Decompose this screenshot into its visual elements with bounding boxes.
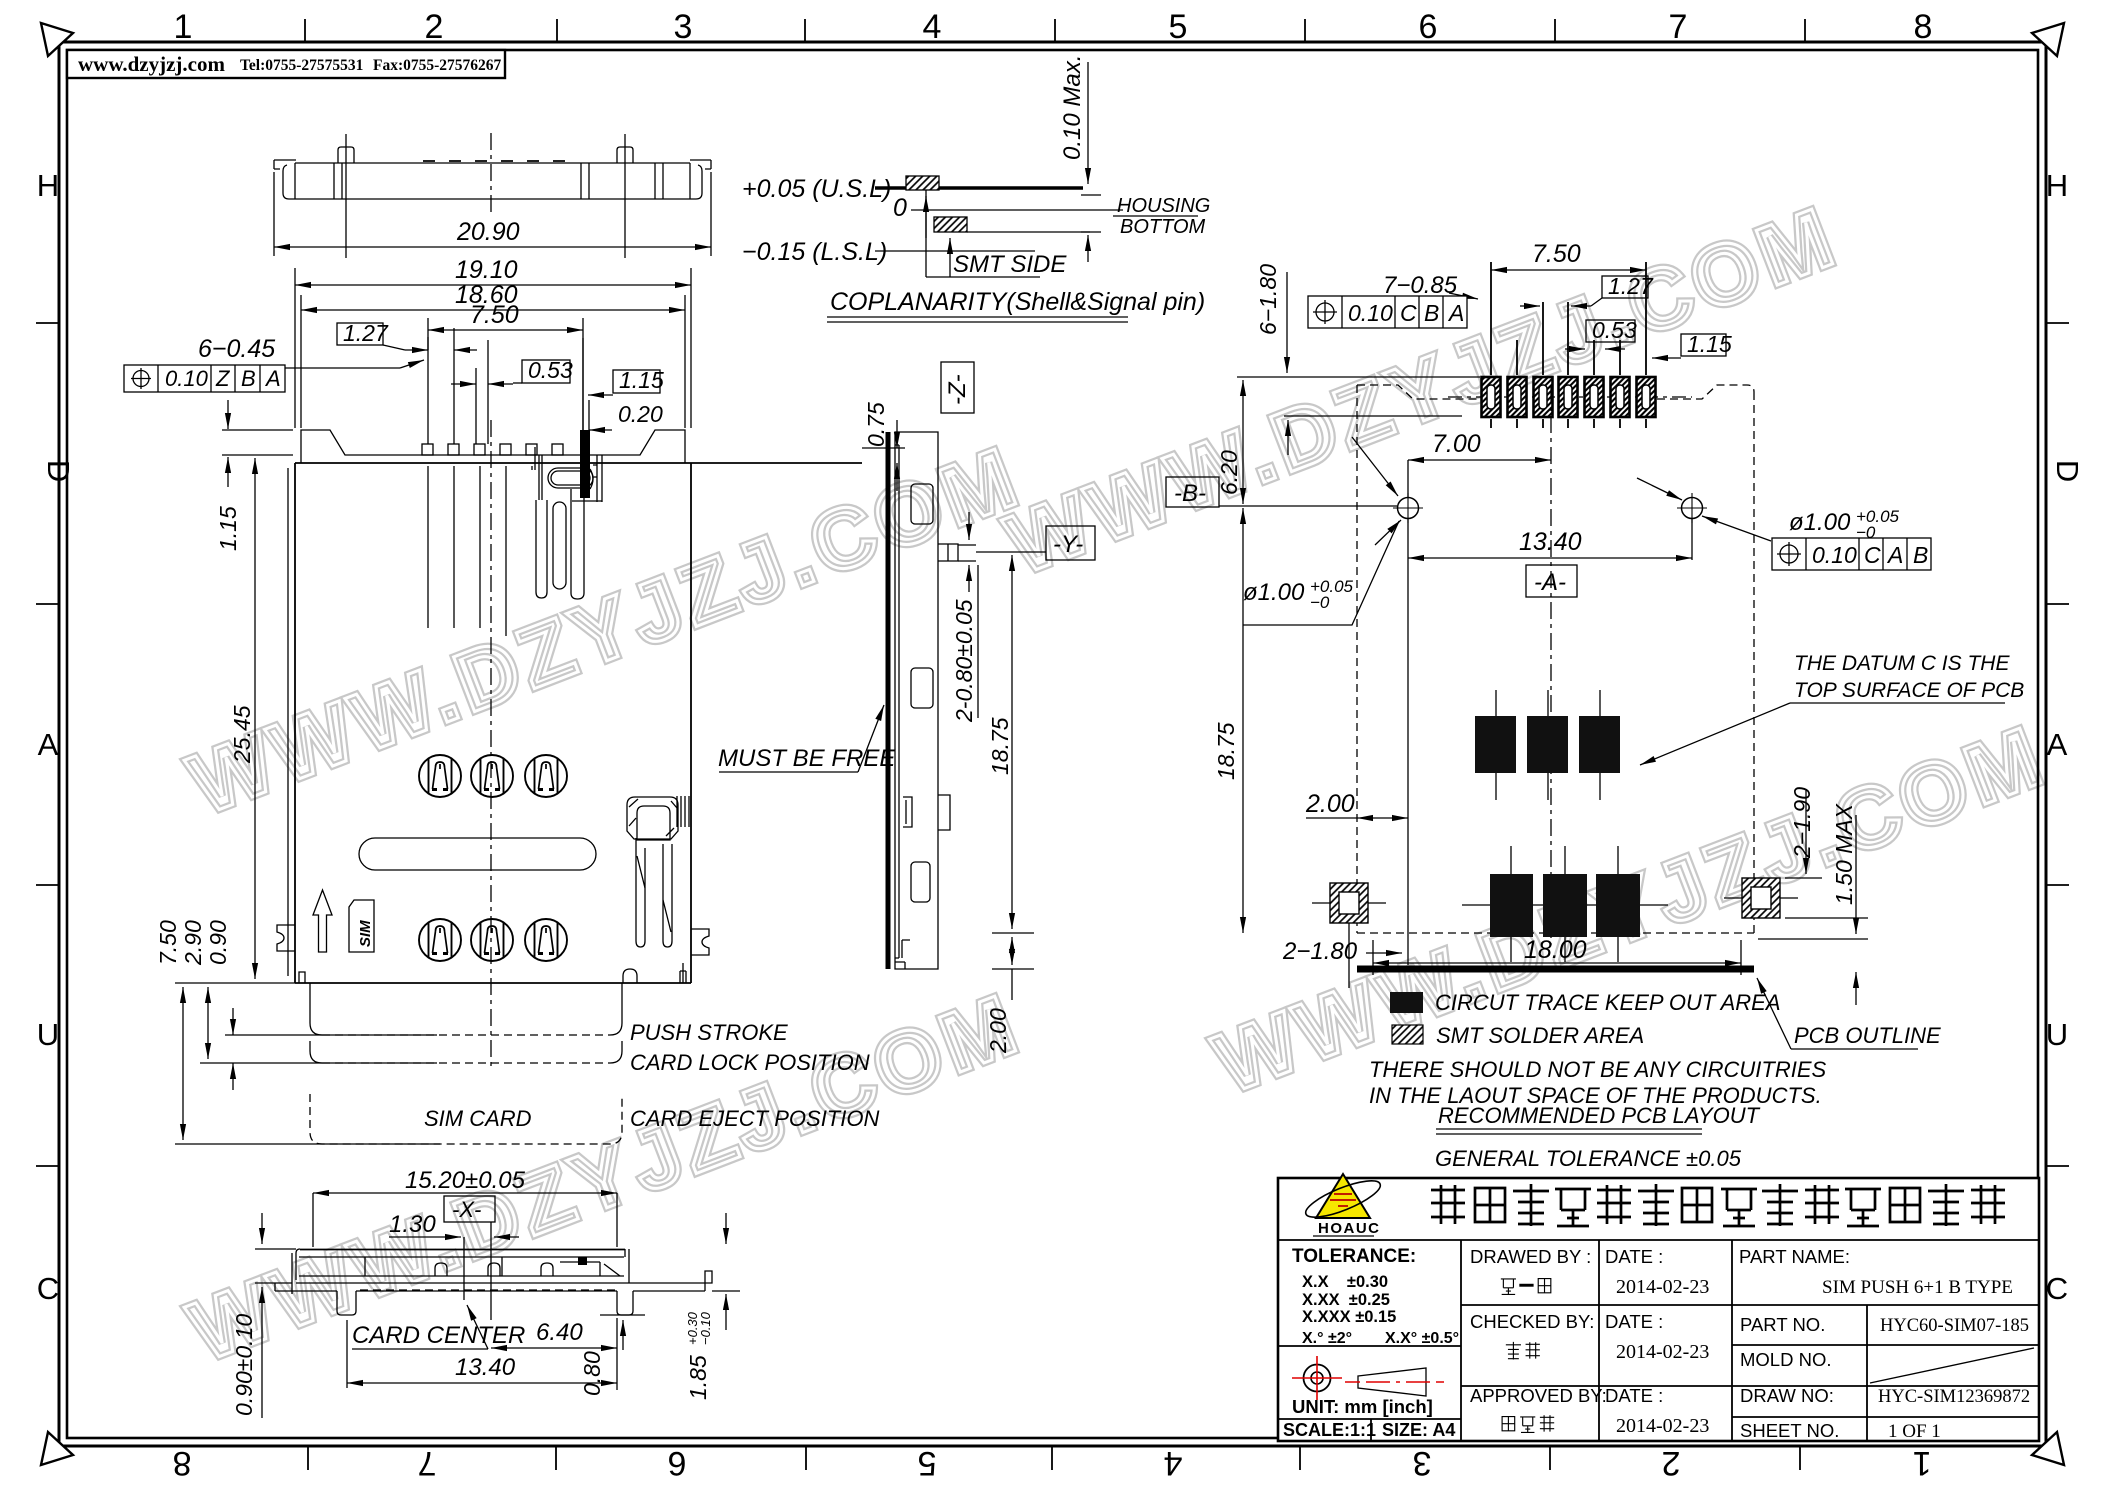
svg-text:7: 7 (1669, 8, 1688, 46)
svg-text:−0: −0 (1310, 593, 1330, 612)
svg-text:0.90: 0.90 (205, 920, 231, 965)
svg-text:SMT SOLDER AREA: SMT SOLDER AREA (1436, 1023, 1644, 1048)
svg-text:2: 2 (1662, 1444, 1681, 1482)
svg-text:2−1.80: 2−1.80 (1282, 938, 1358, 965)
svg-text:X.X ±0.30: X.X ±0.30 (1302, 1273, 1388, 1291)
svg-text:6: 6 (668, 1444, 687, 1482)
svg-text:7−0.85: 7−0.85 (1383, 272, 1458, 299)
svg-text:APPROVED BY:: APPROVED BY: (1470, 1385, 1607, 1406)
svg-text:THERE SHOULD NOT BE ANY CIRCUI: THERE SHOULD NOT BE ANY CIRCUITRIES (1369, 1057, 1827, 1082)
svg-text:SIZE: A4: SIZE: A4 (1382, 1420, 1455, 1440)
svg-text:-X-: -X- (452, 1197, 481, 1222)
svg-text:U: U (2046, 1017, 2068, 1052)
svg-text:H: H (37, 168, 59, 203)
svg-text:0: 0 (893, 194, 907, 222)
svg-text:H: H (2046, 168, 2068, 203)
svg-text:D: D (2050, 460, 2085, 482)
svg-text:6−0.45: 6−0.45 (198, 335, 275, 363)
svg-text:DRAW NO:: DRAW NO: (1740, 1385, 1834, 1406)
svg-text:HOAUC: HOAUC (1318, 1220, 1381, 1237)
svg-text:2: 2 (425, 8, 444, 46)
svg-text:MUST BE FREE: MUST BE FREE (718, 745, 896, 772)
svg-text:7: 7 (418, 1444, 437, 1482)
svg-text:-B-: -B- (1174, 480, 1206, 507)
svg-text:1.15: 1.15 (1687, 331, 1732, 357)
svg-text:A: A (38, 727, 59, 762)
svg-text:DATE :: DATE : (1605, 1385, 1663, 1406)
svg-text:DATE :: DATE : (1605, 1246, 1663, 1267)
svg-text:SIM: SIM (357, 920, 374, 947)
svg-text:7.00: 7.00 (1432, 430, 1481, 458)
svg-text:HYC-SIM12369872: HYC-SIM12369872 (1878, 1387, 2030, 1407)
svg-text:−0.10: −0.10 (698, 1311, 713, 1345)
svg-text:19.10: 19.10 (455, 256, 518, 284)
svg-text:1 OF 1: 1 OF 1 (1888, 1421, 1941, 1442)
svg-text:HYC60-SIM07-185: HYC60-SIM07-185 (1880, 1316, 2029, 1336)
svg-text:13.40: 13.40 (455, 1354, 516, 1381)
svg-text:C: C (2046, 1271, 2068, 1306)
svg-text:1.85: 1.85 (685, 1355, 711, 1400)
svg-text:A: A (2047, 727, 2068, 762)
svg-text:2.00: 2.00 (985, 1008, 1011, 1054)
svg-text:X.XXX ±0.15: X.XXX ±0.15 (1302, 1308, 1396, 1326)
svg-text:SIM PUSH 6+1 B TYPE: SIM PUSH 6+1 B TYPE (1822, 1277, 2013, 1298)
svg-text:25.45: 25.45 (229, 705, 255, 764)
svg-text:PCB OUTLINE: PCB OUTLINE (1794, 1023, 1941, 1048)
svg-text:COPLANARITY(Shell&Signal pin): COPLANARITY(Shell&Signal pin) (830, 288, 1205, 316)
svg-text:13.40: 13.40 (1519, 528, 1582, 556)
svg-text:PART NO.: PART NO. (1740, 1314, 1825, 1335)
svg-text:C: C (1864, 542, 1881, 568)
svg-text:0.10: 0.10 (165, 366, 209, 391)
svg-text:+0.05 (U.S.L): +0.05 (U.S.L) (742, 175, 891, 203)
svg-text:B: B (1913, 542, 1928, 568)
svg-text:Tel:0755-27575531: Tel:0755-27575531 (240, 57, 363, 74)
svg-text:18.75: 18.75 (987, 717, 1013, 775)
svg-text:2.00: 2.00 (1305, 790, 1355, 818)
svg-text:B: B (1424, 300, 1439, 326)
svg-text:UNIT: mm [inch]: UNIT: mm [inch] (1292, 1396, 1433, 1417)
svg-text:TOLERANCE:: TOLERANCE: (1292, 1246, 1416, 1267)
svg-text:8: 8 (1914, 8, 1933, 46)
svg-text:MOLD NO.: MOLD NO. (1740, 1349, 1831, 1370)
svg-text:0.53: 0.53 (528, 357, 573, 383)
svg-text:CARD LOCK POSITION: CARD LOCK POSITION (630, 1050, 870, 1075)
svg-text:DRAWED BY :: DRAWED BY : (1470, 1246, 1591, 1267)
svg-text:A: A (1447, 300, 1464, 326)
svg-text:3: 3 (674, 8, 693, 46)
svg-text:20.90: 20.90 (456, 218, 520, 246)
svg-text:D: D (41, 460, 76, 482)
svg-text:6.20: 6.20 (1216, 450, 1242, 495)
svg-text:C: C (1400, 300, 1417, 326)
svg-text:A: A (264, 366, 281, 391)
svg-text:7.50: 7.50 (1532, 240, 1581, 268)
svg-text:Z: Z (215, 366, 231, 391)
svg-text:2014-02-23: 2014-02-23 (1616, 1276, 1709, 1298)
svg-text:PUSH STROKE: PUSH STROKE (630, 1020, 788, 1045)
svg-text:DATE :: DATE : (1605, 1311, 1663, 1332)
svg-text:7.50: 7.50 (155, 920, 181, 965)
svg-text:4: 4 (1164, 1444, 1183, 1482)
svg-text:GENERAL TOLERANCE ±0.05: GENERAL TOLERANCE ±0.05 (1435, 1146, 1742, 1171)
svg-text:THE DATUM C IS THE: THE DATUM C IS THE (1794, 652, 2010, 675)
svg-text:TOP SURFACE OF PCB: TOP SURFACE OF PCB (1794, 679, 2024, 702)
svg-text:1: 1 (174, 8, 193, 46)
svg-text:A: A (1886, 542, 1903, 568)
svg-text:2014-02-23: 2014-02-23 (1616, 1415, 1709, 1437)
svg-text:1.15: 1.15 (215, 506, 241, 551)
svg-text:-Y-: -Y- (1053, 531, 1083, 558)
svg-text:-Z-: -Z- (944, 374, 971, 405)
svg-text:1.15: 1.15 (619, 367, 664, 393)
svg-text:RECOMMENDED PCB LAYOUT: RECOMMENDED PCB LAYOUT (1438, 1103, 1761, 1128)
svg-text:SIM CARD: SIM CARD (424, 1106, 532, 1131)
svg-text:Fax:0755-27576267: Fax:0755-27576267 (373, 57, 502, 74)
svg-text:CARD EJECT POSITION: CARD EJECT POSITION (630, 1106, 879, 1131)
svg-text:C: C (37, 1271, 59, 1306)
svg-text:8: 8 (173, 1444, 192, 1482)
svg-text:15.20±0.05: 15.20±0.05 (405, 1167, 526, 1194)
svg-text:1.27: 1.27 (343, 320, 389, 346)
svg-text:6: 6 (1419, 8, 1438, 46)
svg-text:5: 5 (918, 1444, 937, 1482)
svg-text:CHECKED BY:: CHECKED BY: (1470, 1311, 1594, 1332)
svg-text:1.27: 1.27 (1608, 273, 1654, 299)
svg-text:5: 5 (1169, 8, 1188, 46)
svg-text:B: B (241, 366, 256, 391)
svg-text:U: U (37, 1017, 59, 1052)
svg-text:SCALE:1:1: SCALE:1:1 (1283, 1420, 1376, 1440)
svg-text:CARD CENTER: CARD CENTER (352, 1322, 525, 1349)
svg-text:0.10: 0.10 (1348, 300, 1393, 326)
svg-text:0.90±0.10: 0.90±0.10 (231, 1314, 257, 1416)
svg-text:BOTTOM: BOTTOM (1120, 216, 1206, 238)
svg-text:0.80: 0.80 (579, 1351, 605, 1396)
svg-text:7.50: 7.50 (470, 301, 519, 329)
svg-text:6.40: 6.40 (536, 1319, 583, 1346)
svg-text:0.75: 0.75 (863, 402, 889, 447)
svg-text:HOUSING: HOUSING (1117, 195, 1210, 217)
svg-text:2−1.90: 2−1.90 (1789, 787, 1815, 859)
svg-text:0.53: 0.53 (1592, 317, 1637, 343)
svg-text:-A-: -A- (1534, 569, 1566, 596)
svg-text:X.X° ±0.5°: X.X° ±0.5° (1385, 1330, 1459, 1347)
svg-text:SHEET NO.: SHEET NO. (1740, 1420, 1839, 1441)
svg-text:ø1.00: ø1.00 (1789, 509, 1851, 536)
svg-text:3: 3 (1413, 1444, 1432, 1482)
svg-text:2014-02-23: 2014-02-23 (1616, 1341, 1709, 1363)
svg-text:1: 1 (1913, 1444, 1932, 1482)
svg-text:2-0.80±0.05: 2-0.80±0.05 (951, 599, 977, 723)
svg-text:−0.15 (L.S.L): −0.15 (L.S.L) (742, 238, 887, 266)
svg-text:18.00: 18.00 (1524, 936, 1587, 964)
svg-text:0.20: 0.20 (618, 401, 663, 427)
svg-text:0.10: 0.10 (1812, 542, 1857, 568)
svg-text:1.30: 1.30 (389, 1211, 436, 1238)
svg-text:0.10 Max.: 0.10 Max. (1059, 55, 1086, 160)
svg-text:X.° ±2°: X.° ±2° (1302, 1330, 1352, 1347)
svg-text:4: 4 (923, 8, 942, 46)
svg-text:ø1.00: ø1.00 (1243, 579, 1305, 606)
svg-text:www.dzyjzj.com: www.dzyjzj.com (78, 52, 225, 76)
svg-text:SMT SIDE: SMT SIDE (953, 251, 1067, 278)
svg-text:PART NAME:: PART NAME: (1739, 1246, 1850, 1267)
svg-text:6−1.80: 6−1.80 (1255, 264, 1281, 335)
svg-text:18.75: 18.75 (1213, 722, 1239, 780)
svg-text:CIRCUT TRACE KEEP OUT AREA: CIRCUT TRACE KEEP OUT AREA (1435, 990, 1781, 1015)
svg-text:X.XX ±0.25: X.XX ±0.25 (1302, 1291, 1390, 1309)
svg-text:2.90: 2.90 (180, 920, 206, 966)
svg-text:1.50 MAX: 1.50 MAX (1831, 802, 1857, 905)
